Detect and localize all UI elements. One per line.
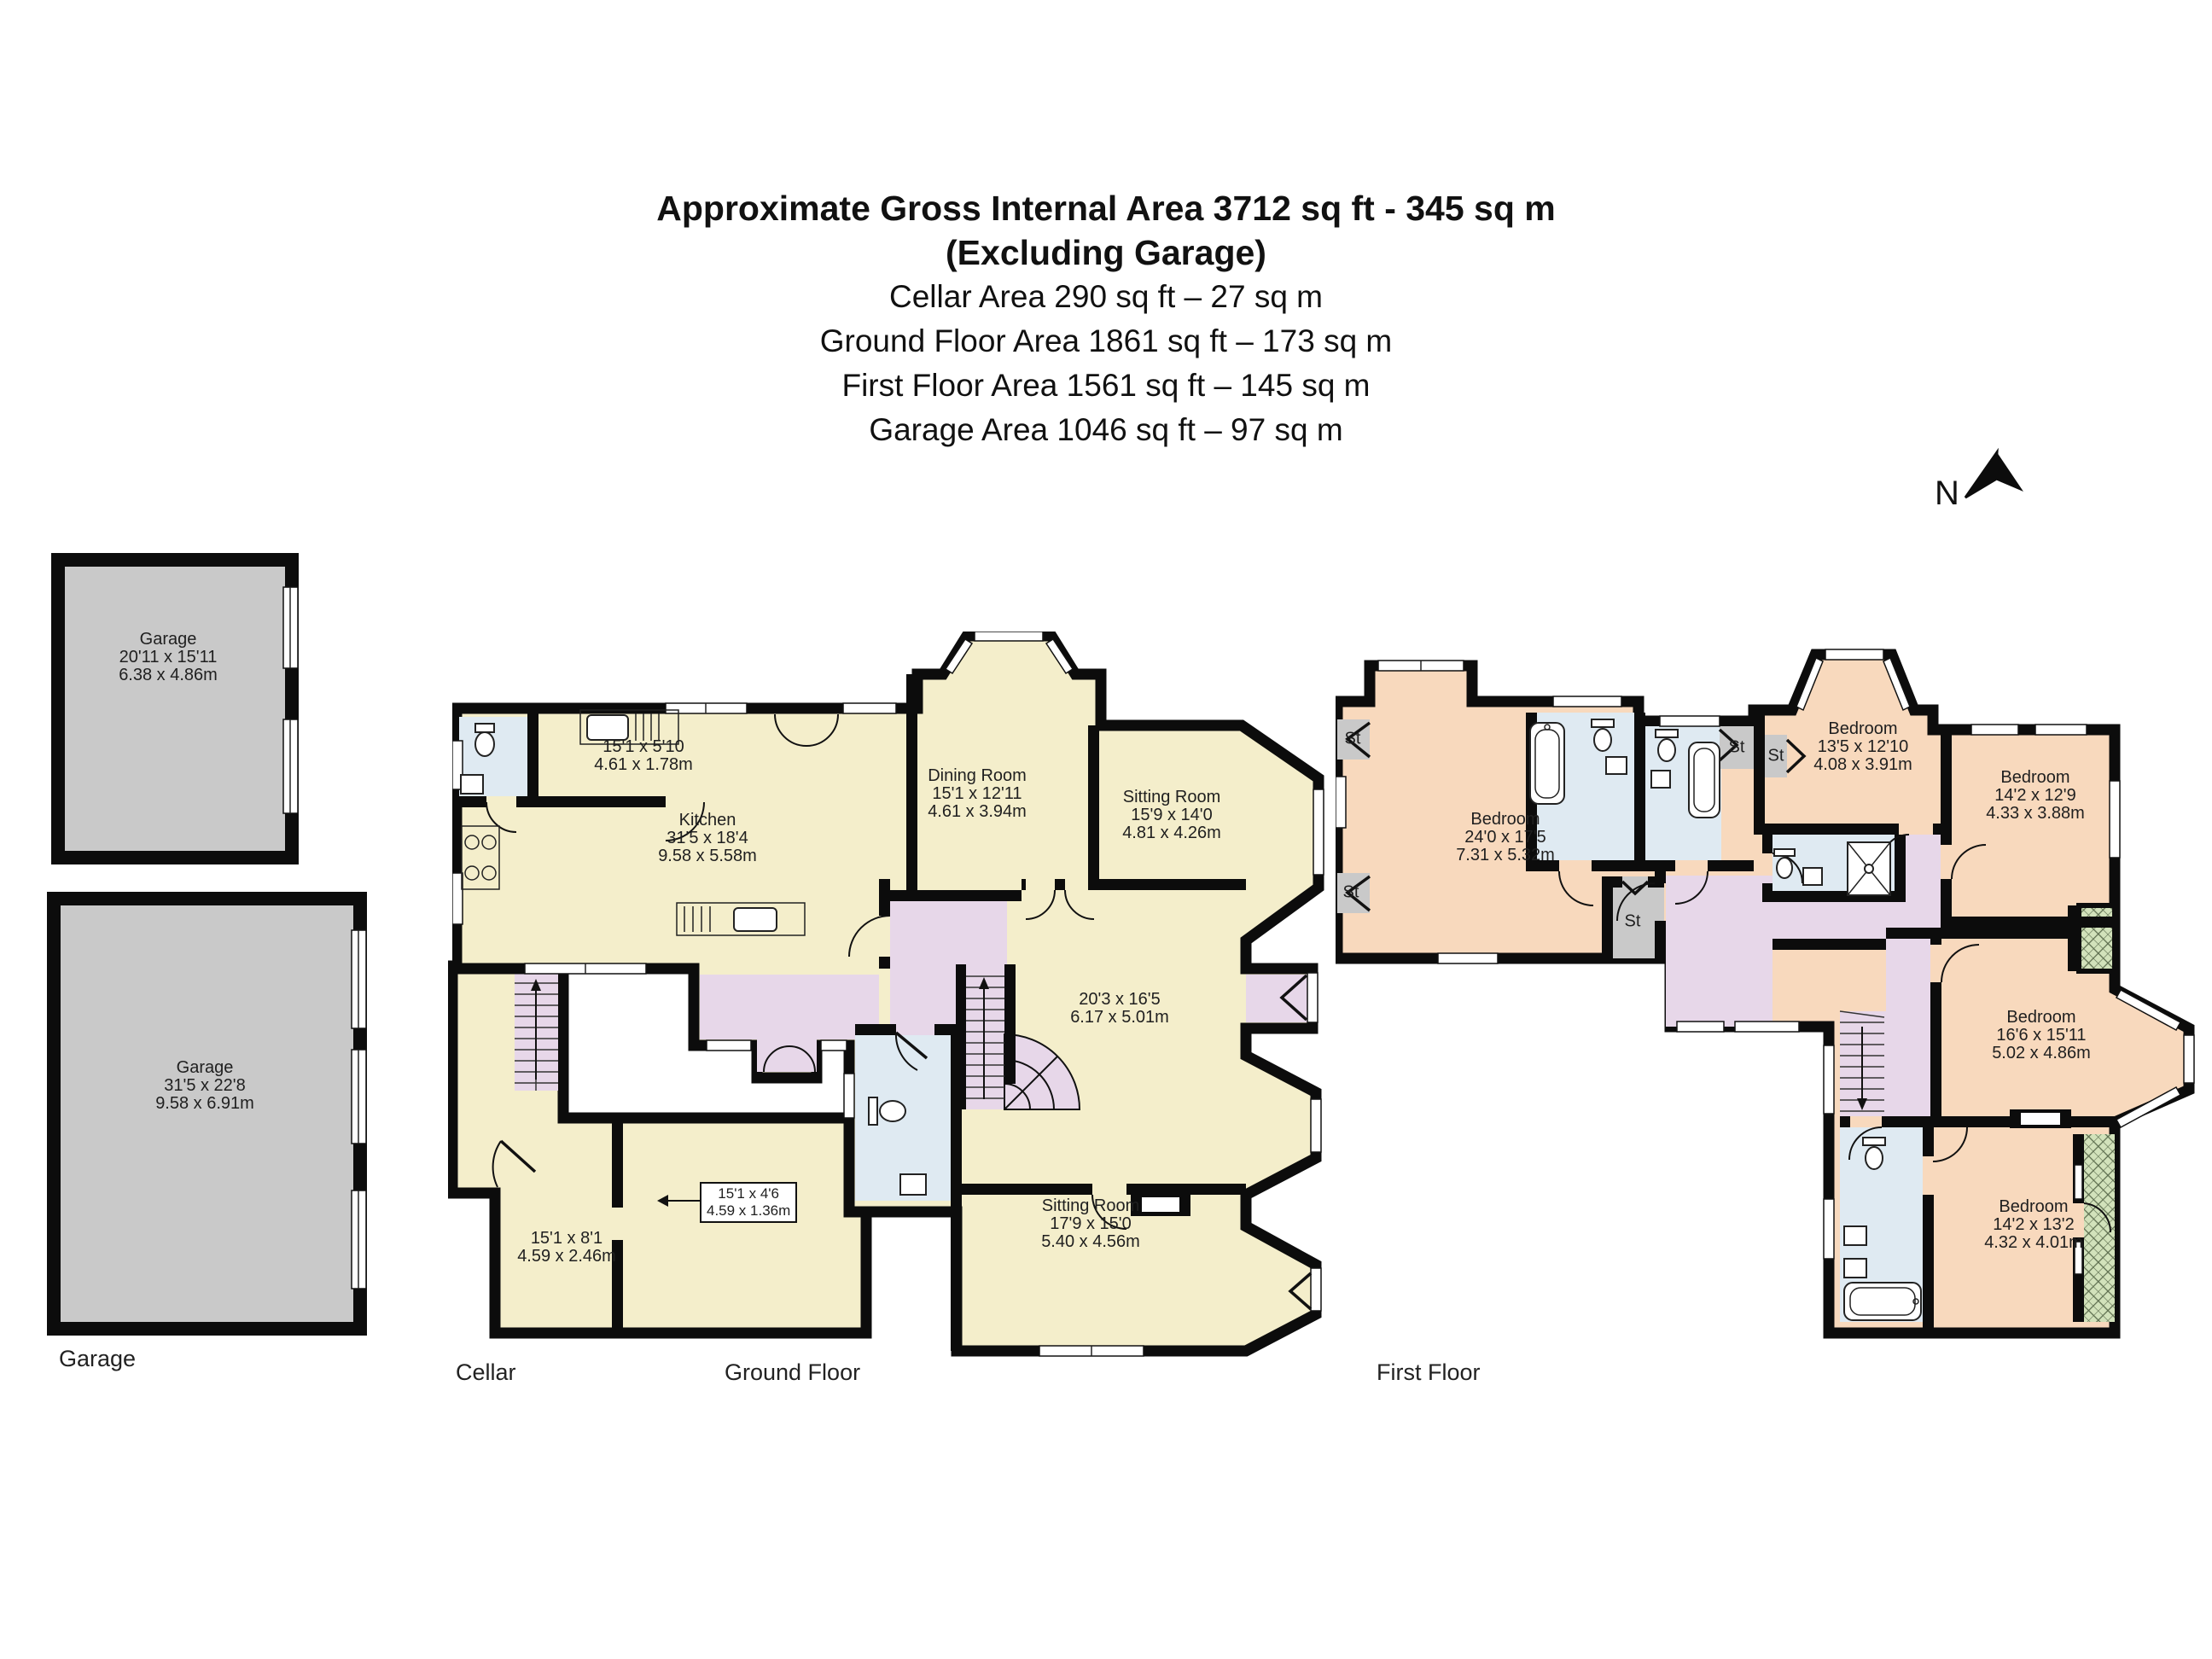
room-label-utility: 15'1 x 5'10 4.61 x 1.78m — [594, 738, 693, 774]
area-line-first: First Floor Area 1561 sq ft – 145 sq m — [0, 364, 2212, 408]
room-dim-metric: 7.31 x 5.32m — [1456, 847, 1555, 864]
ground-floor-plan — [452, 632, 1340, 1364]
landing-area — [1666, 876, 1773, 1027]
north-arrow-icon — [1959, 444, 2035, 505]
room-label-sitting-top: Sitting Room 15'9 x 14'0 4.81 x 4.26m — [1122, 789, 1221, 842]
room-dim-metric: 4.61 x 3.94m — [928, 803, 1027, 821]
sink-icon — [1803, 868, 1822, 885]
toilet-icon — [475, 724, 494, 756]
room-label-bedroom2: Bedroom 13'5 x 12'10 4.08 x 3.91m — [1813, 720, 1912, 774]
caption-ground-floor: Ground Floor — [725, 1359, 860, 1386]
room-name: Garage — [155, 1059, 254, 1077]
page-subtitle: (Excluding Garage) — [0, 230, 2212, 275]
room-name: Sitting Room — [1041, 1197, 1140, 1215]
balcony-area — [2079, 905, 2115, 971]
room-label-hall: 20'3 x 16'5 6.17 x 5.01m — [1070, 991, 1169, 1027]
caption-cellar: Cellar — [456, 1359, 516, 1386]
room-dim-imperial: 15'1 x 5'10 — [594, 738, 693, 756]
garage-top-plan — [51, 553, 299, 864]
room-dim-metric: 4.33 x 3.88m — [1986, 805, 2085, 823]
room-dim-metric: 4.08 x 3.91m — [1813, 756, 1912, 774]
sink-icon — [1651, 771, 1670, 788]
sink-icon — [1844, 1259, 1866, 1278]
room-dim-imperial: 20'11 x 15'11 — [119, 649, 218, 667]
room-dim-imperial: 14'2 x 13'2 — [1984, 1216, 2083, 1234]
shower-icon — [1848, 842, 1890, 895]
room-dim-imperial: 15'1 x 12'11 — [928, 785, 1027, 803]
header: Approximate Gross Internal Area 3712 sq … — [0, 186, 2212, 452]
room-label-garage-top: Garage 20'11 x 15'11 6.38 x 4.86m — [119, 631, 218, 684]
sink-icon — [461, 775, 483, 794]
room-name: Bedroom — [1992, 1009, 2091, 1027]
caption-first-floor: First Floor — [1377, 1359, 1481, 1386]
room-name: Bedroom — [1984, 1198, 2083, 1216]
room-dim-metric: 4.32 x 4.01m — [1984, 1234, 2083, 1252]
storage-label: St — [1343, 883, 1359, 903]
room-dim-imperial: 16'6 x 15'11 — [1992, 1027, 2091, 1045]
toilet-icon — [1863, 1138, 1885, 1169]
room-name: Bedroom — [1456, 811, 1555, 829]
area-line-ground: Ground Floor Area 1861 sq ft – 173 sq m — [0, 319, 2212, 364]
room-dim-imperial: 14'2 x 12'9 — [1986, 787, 2085, 805]
room-dim-imperial: 17'9 x 15'0 — [1041, 1215, 1140, 1233]
floorplan-page: Approximate Gross Internal Area 3712 sq … — [0, 0, 2212, 1659]
room-label-bedroom5: Bedroom 14'2 x 13'2 4.32 x 4.01m — [1984, 1198, 2083, 1252]
room-dim-imperial: 31'5 x 18'4 — [658, 829, 757, 847]
bathtub-icon — [1530, 723, 1564, 804]
room-name: Sitting Room — [1122, 789, 1221, 806]
room-name: Kitchen — [658, 812, 757, 829]
bathtub-icon — [1844, 1283, 1921, 1320]
cloakroom-sink-icon — [900, 1174, 926, 1195]
room-label-garage-main: Garage 31'5 x 22'8 9.58 x 6.91m — [155, 1059, 254, 1113]
room-label-dining: Dining Room 15'1 x 12'11 4.61 x 3.94m — [928, 767, 1027, 821]
room-dim-imperial: 24'0 x 17'5 — [1456, 829, 1555, 847]
room-dim-metric: 5.40 x 4.56m — [1041, 1233, 1140, 1251]
room-dim-imperial: 20'3 x 16'5 — [1070, 991, 1169, 1009]
storage-label: St — [1625, 912, 1641, 932]
room-dim-imperial: 15'9 x 14'0 — [1122, 806, 1221, 824]
room-label-master-bedroom: Bedroom 24'0 x 17'5 7.31 x 5.32m — [1456, 811, 1555, 864]
room-label-sitting-bottom: Sitting Room 17'9 x 15'0 5.40 x 4.56m — [1041, 1197, 1140, 1251]
area-line-garage: Garage Area 1046 sq ft – 97 sq m — [0, 408, 2212, 452]
room-dim-metric: 9.58 x 6.91m — [155, 1095, 254, 1113]
room-name: Dining Room — [928, 767, 1027, 785]
room-dim-metric: 9.58 x 5.58m — [658, 847, 757, 865]
room-name: Bedroom — [1986, 769, 2085, 787]
toilet-icon — [1774, 849, 1795, 878]
storage-label: St — [1345, 730, 1361, 749]
compass-north-label: N — [1935, 474, 1959, 513]
storage-label: St — [1768, 747, 1784, 766]
storage-label: St — [1729, 738, 1745, 758]
room-name: Bedroom — [1813, 720, 1912, 738]
room-dim-metric: 4.81 x 4.26m — [1122, 824, 1221, 842]
toilet-icon — [1592, 719, 1614, 751]
room-dim-metric: 6.38 x 4.86m — [119, 667, 218, 684]
room-name: Garage — [119, 631, 218, 649]
room-dim-metric: 4.61 x 1.78m — [594, 756, 693, 774]
room-dim-imperial: 31'5 x 22'8 — [155, 1077, 254, 1095]
garage-main-plan — [47, 892, 367, 1336]
sink-icon — [1606, 757, 1627, 774]
room-label-bedroom3: Bedroom 14'2 x 12'9 4.33 x 3.88m — [1986, 769, 2085, 823]
caption-garage: Garage — [59, 1346, 136, 1372]
room-label-kitchen: Kitchen 31'5 x 18'4 9.58 x 5.58m — [658, 812, 757, 865]
room-dim-imperial: 13'5 x 12'10 — [1813, 738, 1912, 756]
room-label-bedroom4: Bedroom 16'6 x 15'11 5.02 x 4.86m — [1992, 1009, 2091, 1062]
page-title: Approximate Gross Internal Area 3712 sq … — [0, 186, 2212, 230]
bathtub-icon — [1689, 742, 1720, 818]
room-dim-metric: 6.17 x 5.01m — [1070, 1009, 1169, 1027]
toilet-icon — [1656, 730, 1678, 761]
sink-icon — [1844, 1226, 1866, 1245]
room-dim-metric: 5.02 x 4.86m — [1992, 1045, 2091, 1062]
area-line-cellar: Cellar Area 290 sq ft – 27 sq m — [0, 275, 2212, 319]
